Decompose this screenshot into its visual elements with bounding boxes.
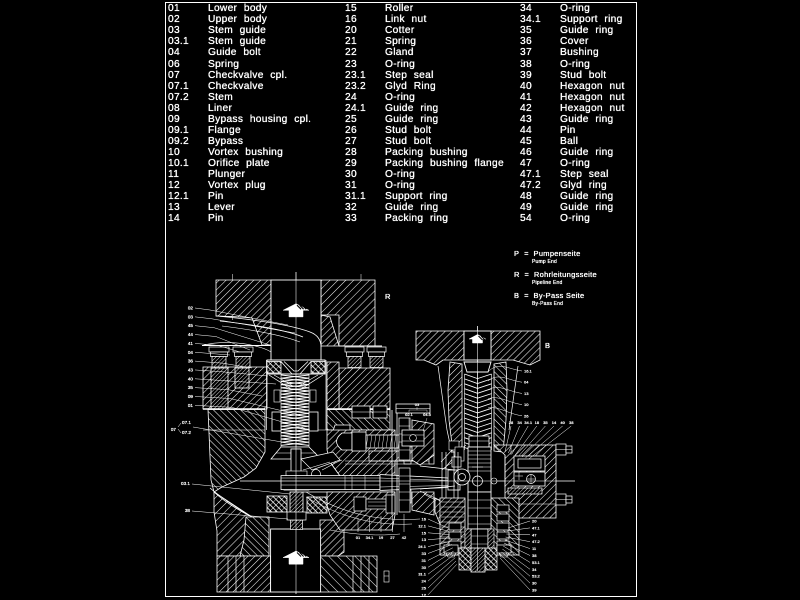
svg-text:45: 45 [188, 323, 194, 328]
svg-text:18: 18 [535, 420, 540, 425]
svg-text:35: 35 [543, 420, 548, 425]
svg-text:27: 27 [390, 535, 395, 540]
svg-text:16: 16 [422, 517, 427, 522]
svg-text:47.1: 47.1 [532, 525, 541, 530]
svg-text:34.1: 34.1 [366, 535, 375, 540]
svg-text:40: 40 [188, 376, 194, 381]
svg-text:04: 04 [524, 380, 529, 385]
svg-text:47: 47 [532, 532, 537, 537]
svg-text:13: 13 [422, 537, 427, 542]
svg-text:38: 38 [532, 553, 537, 558]
svg-text:33: 33 [422, 551, 427, 556]
svg-text:36: 36 [188, 359, 194, 364]
svg-text:30: 30 [532, 581, 537, 586]
svg-text:53.2: 53.2 [532, 574, 541, 579]
svg-text:07: 07 [171, 427, 177, 432]
svg-text:02: 02 [188, 306, 194, 311]
svg-text:07.1: 07.1 [182, 420, 191, 425]
svg-text:35: 35 [188, 385, 194, 390]
svg-text:04.5: 04.5 [423, 412, 432, 417]
svg-text:30: 30 [422, 565, 427, 570]
svg-text:31: 31 [422, 558, 427, 563]
svg-text:03: 03 [188, 314, 194, 319]
svg-text:44: 44 [188, 332, 194, 337]
svg-text:53.1: 53.1 [532, 560, 541, 565]
svg-text:12.1: 12.1 [418, 523, 427, 528]
svg-text:07.2: 07.2 [182, 430, 191, 435]
svg-text:14: 14 [552, 420, 557, 425]
svg-text:24.1: 24.1 [418, 544, 427, 549]
svg-text:13: 13 [524, 391, 529, 396]
svg-text:09: 09 [188, 394, 194, 399]
svg-text:01: 01 [188, 403, 194, 408]
svg-text:10: 10 [524, 402, 529, 407]
svg-text:16.1: 16.1 [524, 369, 533, 374]
svg-text:03: 03 [415, 402, 420, 407]
svg-text:03.1: 03.1 [181, 481, 190, 486]
svg-text:47.2: 47.2 [532, 539, 541, 544]
svg-text:38: 38 [185, 508, 191, 513]
svg-text:31.1: 31.1 [418, 572, 427, 577]
svg-text:34: 34 [517, 420, 522, 425]
svg-text:26: 26 [524, 413, 529, 418]
svg-text:41: 41 [188, 341, 194, 346]
svg-text:34.1: 34.1 [524, 420, 533, 425]
svg-text:15: 15 [422, 530, 427, 535]
svg-text:34: 34 [532, 567, 537, 572]
svg-text:20: 20 [532, 519, 537, 524]
svg-text:12: 12 [422, 592, 427, 597]
svg-text:39: 39 [532, 588, 537, 593]
svg-text:B: B [545, 341, 550, 350]
svg-text:R: R [385, 292, 391, 301]
svg-text:40: 40 [560, 420, 565, 425]
svg-text:42: 42 [402, 535, 407, 540]
svg-text:25: 25 [422, 586, 427, 591]
svg-text:19: 19 [379, 535, 384, 540]
svg-text:28: 28 [509, 420, 514, 425]
svg-text:02.1: 02.1 [405, 412, 414, 417]
svg-text:38: 38 [569, 420, 574, 425]
svg-text:01: 01 [356, 535, 361, 540]
svg-text:11: 11 [532, 546, 537, 551]
svg-text:24: 24 [422, 579, 427, 584]
svg-text:04: 04 [188, 350, 194, 355]
svg-text:43: 43 [188, 367, 194, 372]
